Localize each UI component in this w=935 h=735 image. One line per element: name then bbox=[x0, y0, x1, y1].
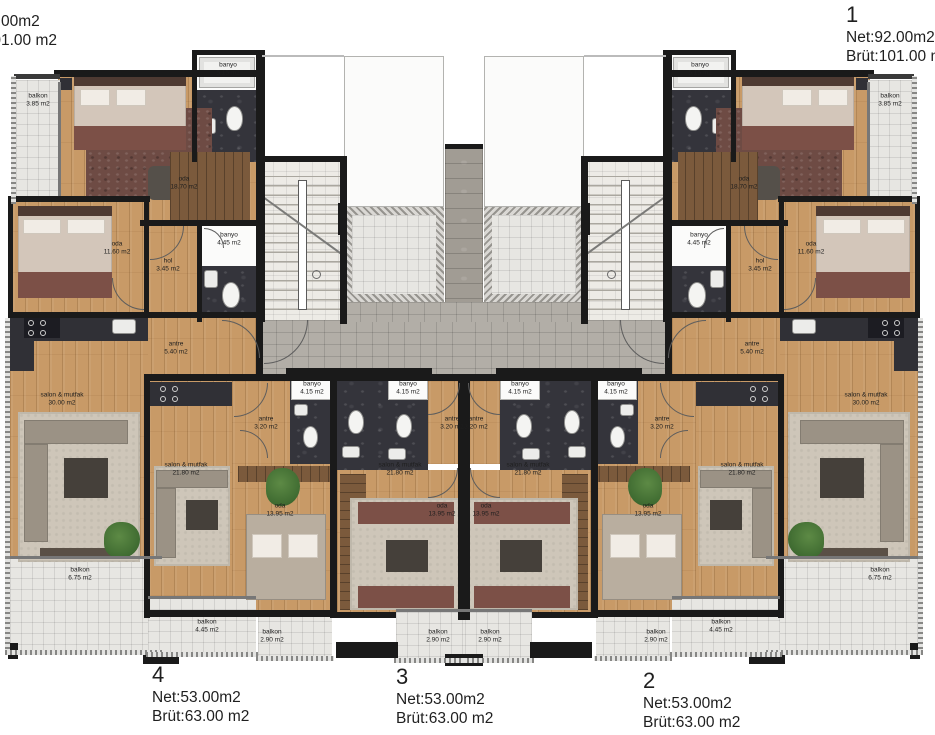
unit-number: 2 bbox=[643, 668, 740, 694]
unit-brut-area: Brüt:63.00 m2 bbox=[643, 713, 740, 732]
unit-info-3: 3 Net:53.00m2 Brüt:63.00 m2 bbox=[396, 664, 493, 728]
unit-brut-area: Brüt:101.00 m2 bbox=[0, 31, 57, 50]
floor-plan-page: { "corner_labels": { "top_left": { "net"… bbox=[0, 0, 935, 735]
unit-net-area: Net:92.00m2 bbox=[0, 12, 57, 31]
unit-number: 1 bbox=[846, 2, 935, 28]
unit-net-area: Net:92.00m2 bbox=[846, 28, 935, 47]
unit-number: 4 bbox=[152, 662, 249, 688]
unit-brut-area: Brüt:101.00 m2 bbox=[846, 47, 935, 66]
unit-brut-area: Brüt:63.00 m2 bbox=[152, 707, 249, 726]
unit-brut-area: Brüt:63.00 m2 bbox=[396, 709, 493, 728]
unit-net-area: Net:53.00m2 bbox=[152, 688, 249, 707]
unit-net-area: Net:53.00m2 bbox=[396, 690, 493, 709]
unit-number: 3 bbox=[396, 664, 493, 690]
text-overlay: Net:92.00m2 Brüt:101.00 m2 1 Net:92.00m2… bbox=[0, 0, 935, 735]
unit-info-1: 1 Net:92.00m2 Brüt:101.00 m2 bbox=[846, 2, 935, 66]
unit-net-area: Net:53.00m2 bbox=[643, 694, 740, 713]
unit-info-2: 2 Net:53.00m2 Brüt:63.00 m2 bbox=[643, 668, 740, 732]
unit-info-4: 4 Net:53.00m2 Brüt:63.00 m2 bbox=[152, 662, 249, 726]
unit-info-top-left: Net:92.00m2 Brüt:101.00 m2 bbox=[0, 12, 57, 50]
